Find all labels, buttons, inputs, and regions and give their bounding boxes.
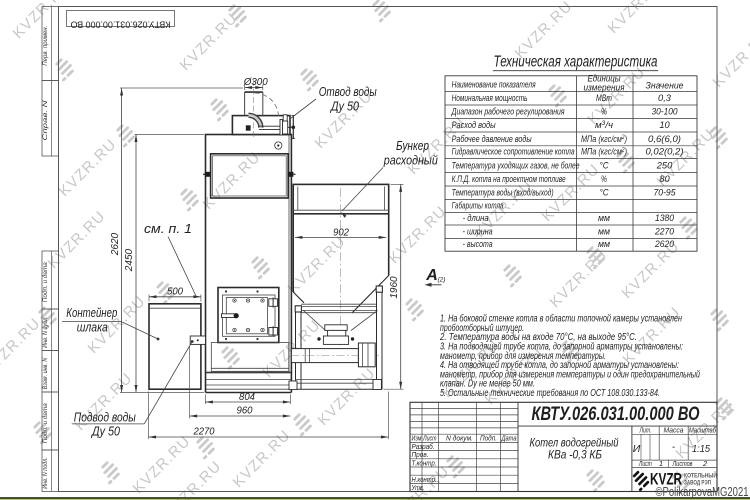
svg-text:Ду 50: Ду 50 — [329, 100, 359, 114]
svg-text:Подвод воды: Подвод воды — [74, 410, 136, 424]
svg-text:К.П.Д. котла на проектном топл: К.П.Д. котла на проектном топливе — [452, 174, 566, 184]
svg-text:Ø300: Ø300 — [243, 77, 268, 88]
svg-text:мм: мм — [598, 239, 611, 249]
svg-text:Расход воды: Расход воды — [452, 120, 496, 130]
svg-text:960: 960 — [237, 406, 253, 417]
svg-text:5. Остальные технические тр: 5. Остальные технические требования по О… — [440, 387, 660, 399]
svg-text:Котел водогрейный: Котел водогрейный — [530, 438, 619, 450]
svg-text:Листов: Листов — [672, 459, 693, 468]
svg-text:мм: мм — [598, 213, 611, 223]
svg-text:- длина: - длина — [463, 213, 489, 223]
svg-text:- ширина: - ширина — [463, 227, 493, 237]
svg-text:Ду 50: Ду 50 — [90, 425, 120, 439]
svg-text:Диапазон рабочего регулировани: Диапазон рабочего регулирования — [451, 107, 565, 117]
svg-text:°С: °С — [600, 188, 609, 198]
svg-text:30-100: 30-100 — [652, 107, 679, 117]
svg-text:80: 80 — [659, 174, 670, 184]
svg-text:Взам. инв. N: Взам. инв. N — [42, 357, 49, 389]
svg-text:2620: 2620 — [654, 239, 675, 249]
svg-text:0,02(0,2): 0,02(0,2) — [646, 146, 684, 156]
svg-text:804: 804 — [239, 392, 255, 403]
svg-text:902: 902 — [333, 227, 349, 238]
svg-text:2620: 2620 — [110, 232, 121, 256]
svg-text:Подп. и дата: Подп. и дата — [41, 403, 49, 443]
svg-text:Инв. N дубл.: Инв. N дубл. — [41, 316, 49, 348]
svg-text:Температура воды (вход/выход): Температура воды (вход/выход) — [452, 188, 554, 198]
svg-text:©PolikarpovaMG2021: ©PolikarpovaMG2021 — [656, 485, 749, 499]
svg-text:КВТУ.026.031.00.000 ВО: КВТУ.026.031.00.000 ВО — [532, 404, 700, 425]
svg-text:Температура уходящих газов, не: Температура уходящих газов, не более — [452, 161, 580, 171]
svg-text:см. п. 1: см. п. 1 — [144, 221, 192, 236]
svg-text:(2): (2) — [438, 277, 446, 284]
svg-text:КВа -0,3 КБ: КВа -0,3 КБ — [548, 450, 602, 462]
svg-text:Подп. и дата: Подп. и дата — [41, 262, 49, 302]
svg-text:2: 2 — [702, 459, 707, 468]
svg-text:Бункер: Бункер — [396, 139, 429, 153]
svg-text:расходный: расходный — [383, 154, 438, 168]
svg-text:N докум.: N докум. — [446, 434, 473, 443]
svg-text:Инв. N подл.: Инв. N подл. — [41, 457, 49, 489]
svg-text:Техническая характеристика: Техническая характеристика — [494, 54, 658, 71]
svg-text:-: - — [672, 441, 676, 453]
svg-text:0,6(6,0): 0,6(6,0) — [648, 134, 681, 144]
svg-text:МВт: МВт — [596, 93, 612, 103]
svg-text:1:15: 1:15 — [692, 443, 710, 455]
svg-text:Масштаб: Масштаб — [689, 426, 717, 435]
svg-text:шлака: шлака — [77, 320, 108, 334]
svg-text:%: % — [601, 174, 607, 184]
svg-text:Номинальная мощность: Номинальная мощность — [452, 93, 528, 103]
svg-text:МПа (кгс/см2): МПа (кгс/см2) — [581, 146, 627, 156]
svg-text:- высота: - высота — [463, 239, 493, 249]
svg-text:Подп.: Подп. — [480, 434, 497, 443]
svg-text:1: 1 — [659, 459, 663, 468]
svg-text:2270: 2270 — [654, 227, 675, 237]
svg-text:Т.контр.: Т.контр. — [412, 458, 437, 467]
svg-text:Перв. примен.: Перв. примен. — [42, 26, 49, 66]
svg-text:МПа (кгс/см2): МПа (кгс/см2) — [581, 134, 627, 144]
svg-text:°С: °С — [600, 161, 609, 171]
svg-text:250: 250 — [656, 161, 673, 171]
svg-text:измерения: измерения — [584, 83, 625, 93]
svg-text:Гидравлическое сопротивление к: Гидравлическое сопротивление котла — [452, 146, 575, 156]
svg-text:0,3: 0,3 — [658, 93, 672, 103]
svg-text:500: 500 — [167, 287, 183, 298]
svg-text:Наименование показателя: Наименование показателя — [452, 80, 536, 90]
svg-text:Рабочее давление воды: Рабочее давление воды — [452, 134, 532, 144]
svg-text:%: % — [601, 107, 607, 117]
svg-text:2450: 2450 — [124, 248, 135, 272]
svg-text:Контейнер: Контейнер — [66, 306, 117, 320]
svg-text:КОТЕЛЬНЫЙ: КОТЕЛЬНЫЙ — [684, 472, 717, 480]
svg-text:Масса: Масса — [664, 426, 684, 435]
svg-text:Габариты котла: Габариты котла — [452, 201, 504, 211]
svg-text:2270: 2270 — [193, 426, 215, 437]
svg-text:КВТУ.026.031.00.000 ВО: КВТУ.026.031.00.000 ВО — [71, 20, 171, 30]
svg-text:Лит.: Лит. — [639, 426, 652, 435]
svg-text:Отвод воды: Отвод воды — [319, 85, 377, 99]
svg-text:Дата: Дата — [501, 434, 517, 443]
svg-text:70-95: 70-95 — [654, 188, 677, 198]
svg-text:Утв.: Утв. — [411, 483, 425, 492]
svg-text:мм: мм — [598, 227, 611, 237]
svg-text:А: А — [425, 267, 438, 284]
svg-text:10: 10 — [659, 120, 670, 130]
svg-text:1960: 1960 — [389, 276, 400, 299]
svg-text:Справ. N: Справ. N — [42, 100, 49, 140]
svg-text:1380: 1380 — [655, 213, 675, 223]
svg-text:И: И — [633, 443, 641, 455]
svg-text:Значение: Значение — [646, 80, 684, 90]
svg-text:Лист: Лист — [638, 459, 652, 468]
